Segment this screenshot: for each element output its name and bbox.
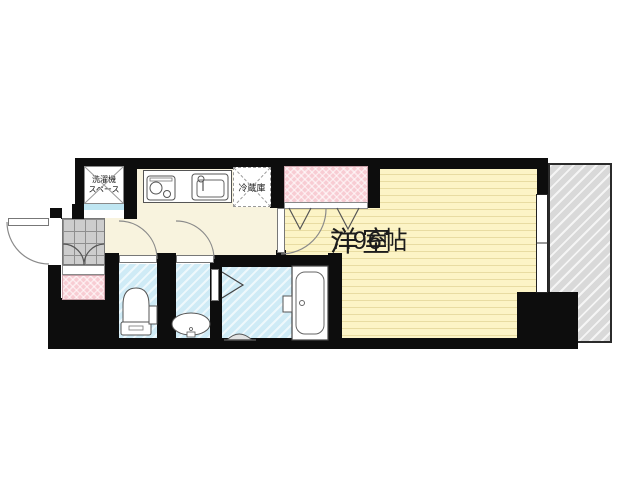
closet-track	[284, 202, 368, 209]
entrance-door	[8, 218, 49, 226]
washer-space: 洗濯機 スペース	[84, 166, 124, 204]
washer-space-label-1: 洗濯機	[92, 175, 116, 185]
closet	[284, 166, 368, 204]
room-door	[277, 208, 285, 253]
wall-bath-right	[328, 253, 342, 348]
washroom-door	[176, 255, 214, 263]
balcony-window	[536, 194, 548, 293]
shoe-cabinet	[62, 275, 105, 300]
fridge-label: 冷蔵庫	[238, 181, 265, 194]
wall-closet-right	[368, 158, 380, 208]
wall-toilet-washroom	[157, 253, 176, 348]
wall-pillar-bottom-right	[517, 292, 578, 349]
washer-space-sill	[84, 204, 124, 210]
wall-left-upper	[75, 158, 84, 210]
wall-bath-top	[214, 255, 340, 267]
fridge-space: 冷蔵庫	[233, 167, 271, 207]
entrance-doorway	[48, 218, 61, 265]
wall-closet-left	[276, 158, 284, 208]
floor-plan: 洗濯機 スペース 冷蔵庫	[0, 0, 640, 480]
washroom	[172, 264, 210, 340]
western-room-size: 7.96帖	[330, 221, 409, 257]
wall-washer-right	[124, 158, 137, 219]
toilet-door	[119, 255, 157, 263]
wall-entry-stub2	[72, 204, 84, 219]
wall-bottom	[48, 338, 518, 349]
genkan-tile	[62, 218, 105, 265]
entrance-door-arc	[7, 222, 49, 264]
kitchen-counter	[143, 170, 232, 203]
wall-left-lower	[48, 264, 61, 348]
bathroom-folding-door-frame	[211, 269, 219, 301]
wall-toilet-left	[105, 253, 119, 348]
toilet-room	[117, 264, 158, 340]
wall-window-top-stub	[537, 158, 548, 194]
shoe-cabinet-top	[62, 265, 105, 275]
bathroom	[222, 264, 328, 340]
washer-space-label-2: スペース	[88, 185, 119, 195]
